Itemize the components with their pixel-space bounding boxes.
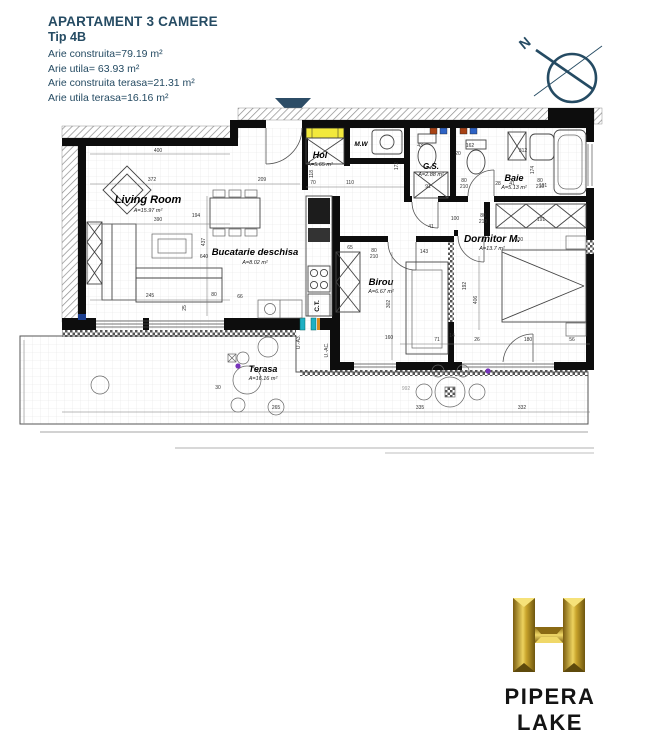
unit-label: U.-AC.	[324, 343, 330, 358]
brand-logo	[513, 598, 585, 672]
wall-accent-blue	[78, 314, 86, 320]
dim-label: 20	[455, 151, 461, 157]
dim-label: 143	[420, 249, 429, 255]
marker-dot	[235, 363, 240, 368]
room-label-mw: M.W	[354, 141, 368, 148]
unit-label: U.-A3.	[296, 335, 302, 349]
dim-label: 172	[394, 162, 400, 171]
dim-label: 71	[434, 337, 440, 343]
area-line: Arie construita terasa=21.31 m²	[48, 76, 218, 91]
dim-label: 66	[237, 294, 243, 300]
dim-label: 30	[215, 385, 221, 391]
dim-label: 56	[569, 337, 575, 343]
dim-label: 332	[518, 405, 527, 411]
dim-label: 210	[460, 184, 469, 190]
dim-label: 390	[154, 217, 163, 223]
room-area: A=5.65 m²	[306, 162, 333, 168]
dim-label: 26	[474, 337, 480, 343]
room-label-birou: Birou	[369, 277, 394, 288]
dim-label: 210	[370, 254, 379, 260]
dim-label: 992	[402, 386, 411, 392]
dim-label: 160	[385, 335, 394, 341]
dim-label: 194	[192, 213, 201, 219]
dim-label: 110	[346, 180, 354, 186]
wall-niche	[586, 240, 594, 254]
dim-label: 400	[154, 148, 163, 154]
room-area: A=6.67 m²	[367, 289, 394, 295]
area-line: Arie utila terasa=16.16 m²	[48, 91, 218, 106]
dim-label: 14	[449, 333, 455, 339]
dim-label: 180	[524, 337, 533, 343]
dim-label: 192	[462, 282, 468, 291]
area-line: Arie construita=79.19 m²	[48, 47, 218, 62]
dim-label: 302	[386, 300, 392, 309]
room-area: A=2.88 m²	[417, 172, 444, 178]
dim-label: 312	[519, 148, 528, 154]
room-label-terasa: Terasa	[249, 364, 278, 374]
dim-label: 406	[473, 296, 479, 305]
electrical-panel	[306, 128, 344, 138]
dim-label: 335	[416, 405, 425, 411]
dim-label: 118	[309, 170, 315, 178]
floorplan-drawing: N	[0, 0, 653, 720]
apartment-title: APARTAMENT 3 CAMERE	[48, 14, 218, 29]
dim-label: 28	[495, 181, 501, 187]
dim-label: 25	[182, 305, 188, 311]
dim-label: 80	[211, 292, 217, 298]
dim-label: 43	[417, 143, 423, 149]
room-area: A=15.97 m²	[133, 208, 163, 214]
room-label-living: Living Room	[115, 194, 182, 206]
logo-right-bar	[563, 598, 585, 672]
room-area: A=16.16 m²	[248, 376, 278, 382]
dim-label: 100	[451, 216, 460, 222]
boiler-label: C.T.	[314, 300, 321, 312]
dim-label: 41	[428, 224, 434, 230]
dim-label: 91	[425, 184, 431, 190]
dim-label: 330	[515, 237, 524, 243]
logo-left-bar	[513, 598, 535, 672]
dim-label: 209	[258, 177, 267, 183]
dim-label: 210	[536, 184, 545, 190]
compass: N	[516, 34, 602, 102]
apartment-type: Tip 4B	[48, 30, 218, 44]
room-area: A=13.7 m²	[478, 246, 505, 252]
dim-label: 245	[146, 293, 155, 299]
dim-label: 191	[537, 217, 546, 223]
room-area: A=8.02 m²	[241, 260, 268, 266]
dim-label: 372	[148, 177, 157, 183]
dim-label: 437	[201, 238, 207, 247]
dim-label: 65	[347, 245, 353, 251]
compass-circle	[548, 54, 596, 102]
marker-dot	[485, 368, 490, 373]
north-label: N	[516, 34, 534, 53]
dim-label: 162	[466, 143, 475, 149]
dim-label: 640	[200, 254, 209, 260]
brand-name: PIPERA LAKE	[470, 684, 630, 736]
dim-label: 174	[530, 166, 536, 175]
wall-checkered	[448, 242, 454, 322]
oven	[308, 228, 330, 242]
dim-label: 265	[272, 405, 281, 411]
room-label-bucatarie: Bucatarie deschisa	[212, 247, 299, 258]
dim-label: 210	[479, 219, 488, 225]
dim-label: 41	[509, 181, 515, 187]
room-label-hol: Hol	[313, 150, 328, 160]
room-label-dormitor: Dormitor M.	[464, 234, 520, 245]
plan-header: APARTAMENT 3 CAMERE Tip 4B Arie construi…	[48, 14, 218, 105]
area-line: Arie utila= 63.93 m²	[48, 62, 218, 77]
dim-label: 70	[310, 180, 316, 186]
room-label-gs: G.S.	[423, 162, 439, 171]
fridge	[308, 198, 330, 224]
